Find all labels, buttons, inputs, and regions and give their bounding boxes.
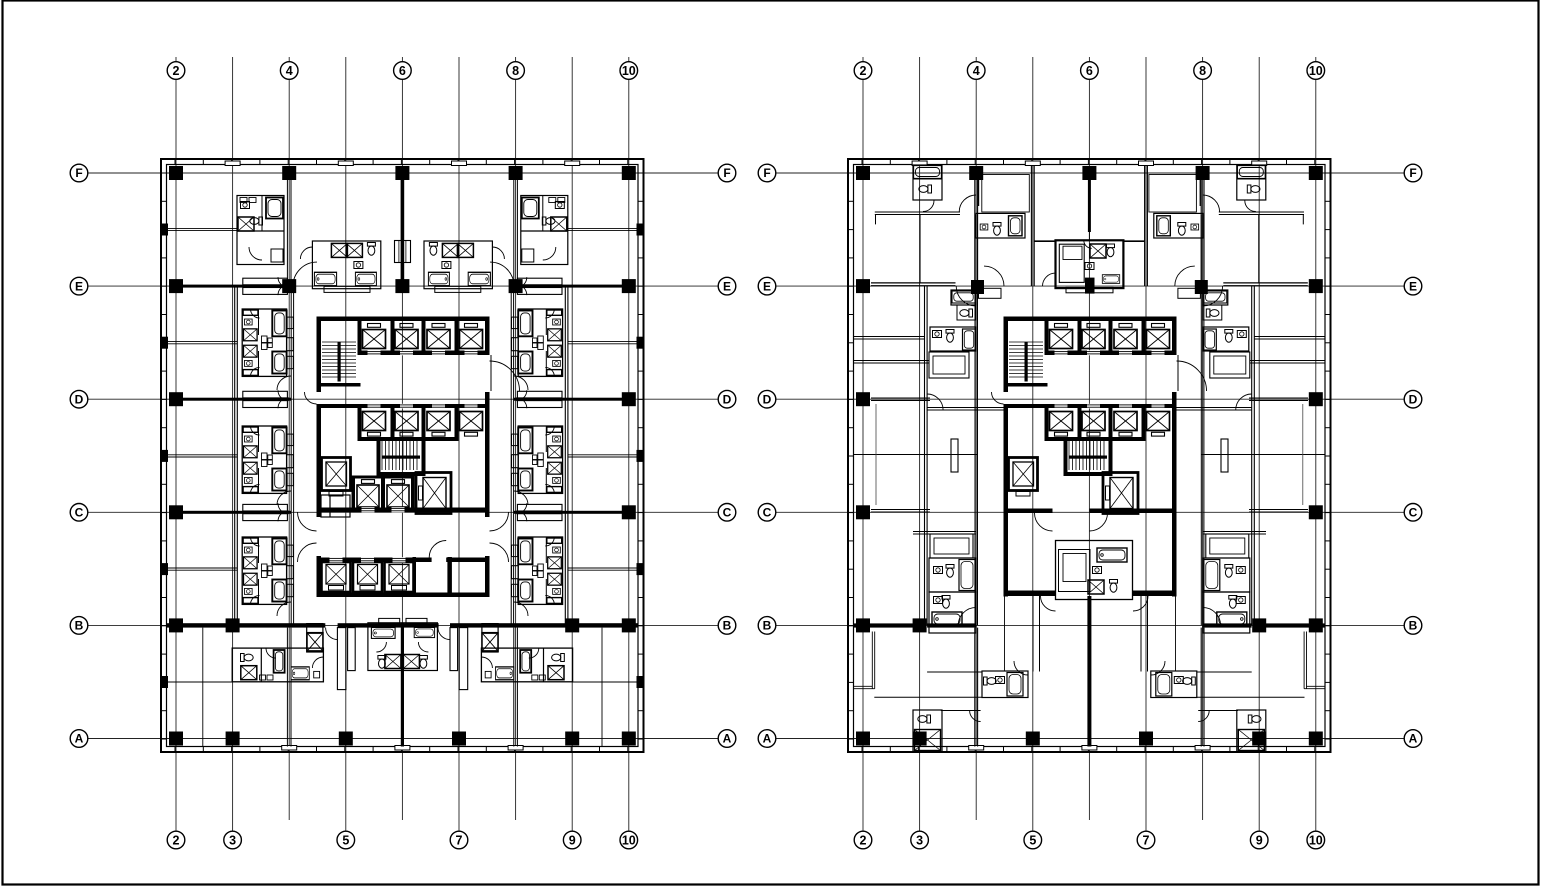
svg-text:B: B: [1409, 619, 1418, 633]
svg-text:F: F: [1409, 166, 1416, 180]
svg-text:F: F: [75, 166, 82, 180]
svg-text:E: E: [763, 279, 771, 293]
svg-text:10: 10: [1309, 64, 1323, 78]
svg-text:C: C: [723, 506, 732, 520]
svg-text:F: F: [763, 166, 770, 180]
svg-text:C: C: [763, 506, 772, 520]
svg-text:7: 7: [456, 833, 463, 847]
svg-text:A: A: [763, 732, 772, 746]
svg-text:2: 2: [173, 833, 180, 847]
svg-text:7: 7: [1143, 833, 1150, 847]
svg-text:4: 4: [286, 64, 293, 78]
svg-text:E: E: [1409, 279, 1417, 293]
svg-text:F: F: [723, 166, 730, 180]
svg-text:4: 4: [973, 64, 980, 78]
svg-text:A: A: [75, 732, 84, 746]
svg-text:3: 3: [229, 833, 236, 847]
svg-text:5: 5: [342, 833, 349, 847]
svg-text:6: 6: [1086, 64, 1093, 78]
svg-text:A: A: [1409, 732, 1418, 746]
svg-text:D: D: [1409, 392, 1418, 406]
svg-text:C: C: [75, 506, 84, 520]
svg-text:5: 5: [1029, 833, 1036, 847]
svg-text:B: B: [75, 619, 84, 633]
svg-text:10: 10: [1309, 833, 1323, 847]
svg-text:10: 10: [622, 833, 636, 847]
svg-text:9: 9: [569, 833, 576, 847]
svg-text:B: B: [763, 619, 772, 633]
svg-text:C: C: [1409, 506, 1418, 520]
svg-text:3: 3: [916, 833, 923, 847]
svg-text:8: 8: [1199, 64, 1206, 78]
svg-text:D: D: [75, 392, 84, 406]
svg-text:B: B: [723, 619, 732, 633]
svg-text:2: 2: [860, 833, 867, 847]
svg-text:2: 2: [860, 64, 867, 78]
svg-text:10: 10: [622, 64, 636, 78]
svg-text:8: 8: [512, 64, 519, 78]
svg-text:9: 9: [1256, 833, 1263, 847]
svg-text:D: D: [763, 392, 772, 406]
svg-text:A: A: [723, 732, 732, 746]
svg-text:E: E: [723, 279, 731, 293]
svg-text:6: 6: [399, 64, 406, 78]
svg-text:E: E: [75, 279, 83, 293]
svg-text:2: 2: [173, 64, 180, 78]
svg-text:D: D: [723, 392, 732, 406]
